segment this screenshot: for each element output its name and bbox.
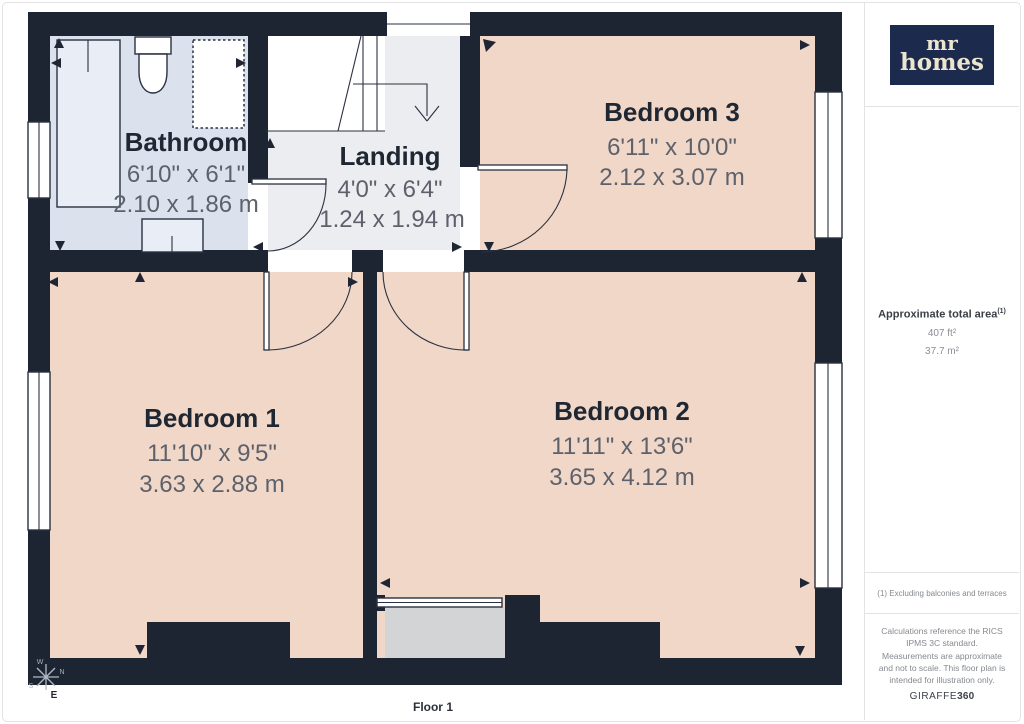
logo-section: mr homes <box>865 3 1019 107</box>
shower <box>193 40 244 128</box>
compass-east-label: E <box>51 690 58 701</box>
bedroom2-dim-imperial: 11'11" x 13'6" <box>551 433 692 460</box>
bedroom1-name: Bedroom 1 <box>144 403 280 433</box>
bedroom1-dim-metric: 3.63 x 2.88 m <box>139 471 284 498</box>
brand-suffix: 360 <box>957 691 974 702</box>
compass-west-label: W <box>37 659 44 666</box>
floorplan-page: W N S E Bathroom 6'10" x 6'1" 2.10 x 1.8… <box>0 0 1024 724</box>
area-title-text: Approximate total area <box>878 309 997 321</box>
floor-label: Floor 1 <box>413 700 453 714</box>
footnote-section: (1) Excluding balconies and terraces <box>865 572 1019 614</box>
total-area-block: Approximate total area(1) 407 ft² 37.7 m… <box>865 308 1019 357</box>
giraffe360-brand: GIRAFFE360 <box>865 691 1019 702</box>
bathtub <box>57 40 120 207</box>
compass-south-label: S <box>29 683 34 690</box>
info-sidebar: mr homes Approximate total area(1) 407 f… <box>865 3 1019 720</box>
bathroom-name: Bathroom <box>125 127 248 157</box>
compass-north-label: N <box>59 669 64 676</box>
bedroom2-bottom-window <box>377 598 502 607</box>
disclaimer-text: Calculations reference the RICS IPMS 3C … <box>865 625 1019 687</box>
landing-name: Landing <box>339 141 440 171</box>
landing-dim-metric: 1.24 x 1.94 m <box>319 206 464 233</box>
dormer-roof-area <box>385 607 515 660</box>
bedroom3-dim-metric: 2.12 x 3.07 m <box>599 164 744 191</box>
area-sqft: 407 ft² <box>865 328 1019 339</box>
bathroom-dim-imperial: 6'10" x 6'1" <box>127 161 245 188</box>
mr-homes-logo: mr homes <box>890 25 994 85</box>
bedroom3-window <box>815 92 842 238</box>
area-sqm: 37.7 m² <box>865 346 1019 357</box>
area-title: Approximate total area(1) <box>865 308 1019 321</box>
area-note-ref: (1) <box>997 308 1006 315</box>
footnote-text: (1) Excluding balconies and terraces <box>873 589 1010 598</box>
bedroom1-dim-imperial: 11'10" x 9'5" <box>147 440 277 467</box>
bedroom3-dim-imperial: 6'11" x 10'0" <box>607 134 737 161</box>
bathroom-window <box>28 122 50 198</box>
bedroom2-window <box>815 363 842 588</box>
bedroom3-name: Bedroom 3 <box>604 97 740 127</box>
bedroom1-window <box>28 372 50 530</box>
floorplan-drawing: W N S E Bathroom 6'10" x 6'1" 2.10 x 1.8… <box>0 0 862 724</box>
bathroom-dim-metric: 2.10 x 1.86 m <box>113 191 258 218</box>
disclaimer-section: Calculations reference the RICS IPMS 3C … <box>865 625 1019 687</box>
landing-dim-imperial: 4'0" x 6'4" <box>338 176 443 203</box>
bedroom2-dim-metric: 3.65 x 4.12 m <box>549 464 694 491</box>
bedroom2-name: Bedroom 2 <box>554 396 690 426</box>
sink <box>142 219 203 252</box>
brand-name: GIRAFFE <box>910 691 958 702</box>
logo-line2: homes <box>900 51 984 74</box>
